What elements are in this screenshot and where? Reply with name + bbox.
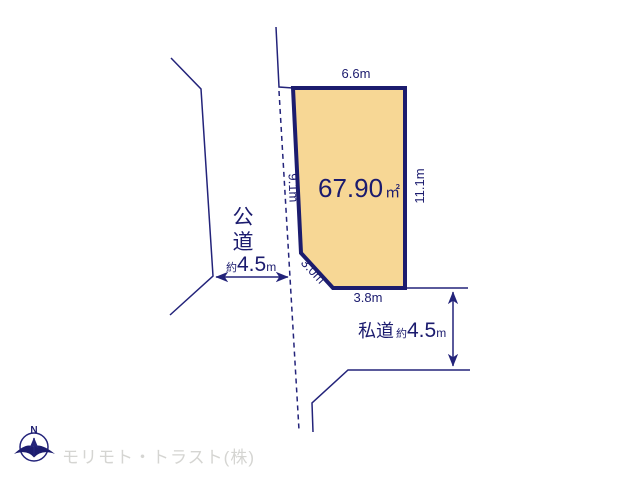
public-road-width-approx: 約	[226, 260, 237, 274]
plot-area-value: 67.90	[318, 173, 383, 203]
public-road-width-label: 約4.5m	[226, 253, 276, 276]
private-road-label: 私道	[358, 321, 394, 341]
site-plan-drawing: 67.90㎡ 6.6m 11.1m 9.1m 3.0m 3.8m 公 道 約4.…	[0, 0, 640, 480]
private-road-width-label: 私道約4.5m	[358, 319, 446, 342]
dimension-bottom: 3.8m	[354, 290, 383, 305]
private-road-width-unit: m	[436, 326, 446, 340]
private-road-lower-edge	[312, 370, 470, 432]
company-watermark: モリモト・トラスト(株)	[62, 448, 255, 467]
road-boundary-upper-right	[276, 27, 293, 88]
dimension-right: 11.1m	[412, 168, 427, 203]
public-road-label-char1: 公	[233, 206, 254, 229]
road-boundary-left	[170, 58, 213, 315]
public-road-width-unit: m	[266, 260, 276, 274]
public-road-width-value: 4.5	[237, 253, 266, 276]
north-compass: N	[14, 425, 55, 461]
public-road-label-char2: 道	[233, 231, 254, 254]
site-plan: 67.90㎡ 6.6m 11.1m 9.1m 3.0m 3.8m 公 道 約4.…	[0, 0, 640, 480]
compass-north-label: N	[30, 425, 37, 436]
private-road-width-approx: 約	[396, 326, 407, 340]
plot-area-unit: ㎡	[385, 184, 400, 201]
dimension-left: 9.1m	[285, 173, 301, 202]
private-road-width-value: 4.5	[407, 319, 436, 342]
dimension-top: 6.6m	[342, 66, 371, 81]
